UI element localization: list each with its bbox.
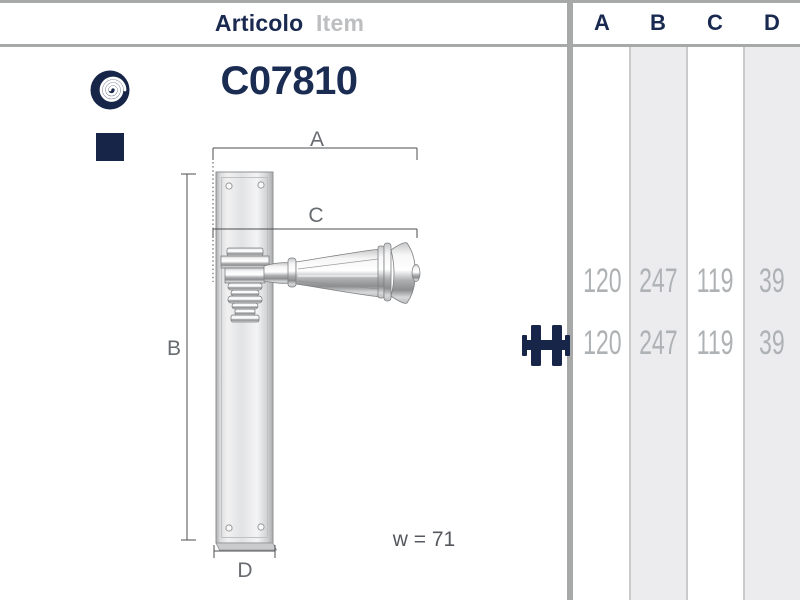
finish-square-icon: [96, 133, 124, 161]
lever-handle-drawing: [221, 243, 420, 322]
dim-label-a: A: [310, 128, 324, 151]
value-a-row2: 120: [574, 326, 630, 360]
column-divider: [686, 47, 688, 600]
handle-pair-icon: [521, 322, 571, 368]
value-d-row2: 39: [744, 326, 800, 360]
table-separator: [567, 0, 573, 600]
dim-label-c: C: [308, 204, 323, 227]
screw-hole: [226, 525, 232, 531]
value-a-row1: 120: [574, 264, 630, 298]
column-divider: [743, 47, 745, 600]
value-b-row1: 247: [630, 264, 686, 298]
column-divider: [629, 47, 631, 600]
screw-hole: [258, 182, 264, 188]
column-header-a: A: [574, 9, 630, 37]
technical-drawing: A C B D w = 71: [160, 120, 470, 590]
width-note: w = 71: [392, 528, 455, 551]
item-label: Item: [316, 10, 364, 36]
column-header-b: B: [630, 9, 686, 37]
value-d-row1: 39: [744, 264, 800, 298]
dim-label-d: D: [237, 559, 252, 582]
brand-spiral-icon: [88, 68, 134, 116]
value-c-row2: 119: [687, 326, 743, 360]
catalog-page: Articolo Item A B C D C07810: [0, 0, 800, 600]
header-bottom-border: [0, 44, 800, 47]
header-title: Articolo Item: [6, 9, 573, 37]
top-border: [0, 0, 800, 3]
value-b-row2: 247: [630, 326, 686, 360]
screw-hole: [258, 524, 264, 530]
dim-label-b: B: [167, 337, 181, 360]
column-header-c: C: [687, 9, 743, 37]
value-c-row1: 119: [687, 264, 743, 298]
product-code: C07810: [166, 60, 412, 102]
articolo-label: Articolo: [215, 10, 304, 36]
column-header-d: D: [744, 9, 800, 37]
screw-hole: [226, 183, 232, 189]
